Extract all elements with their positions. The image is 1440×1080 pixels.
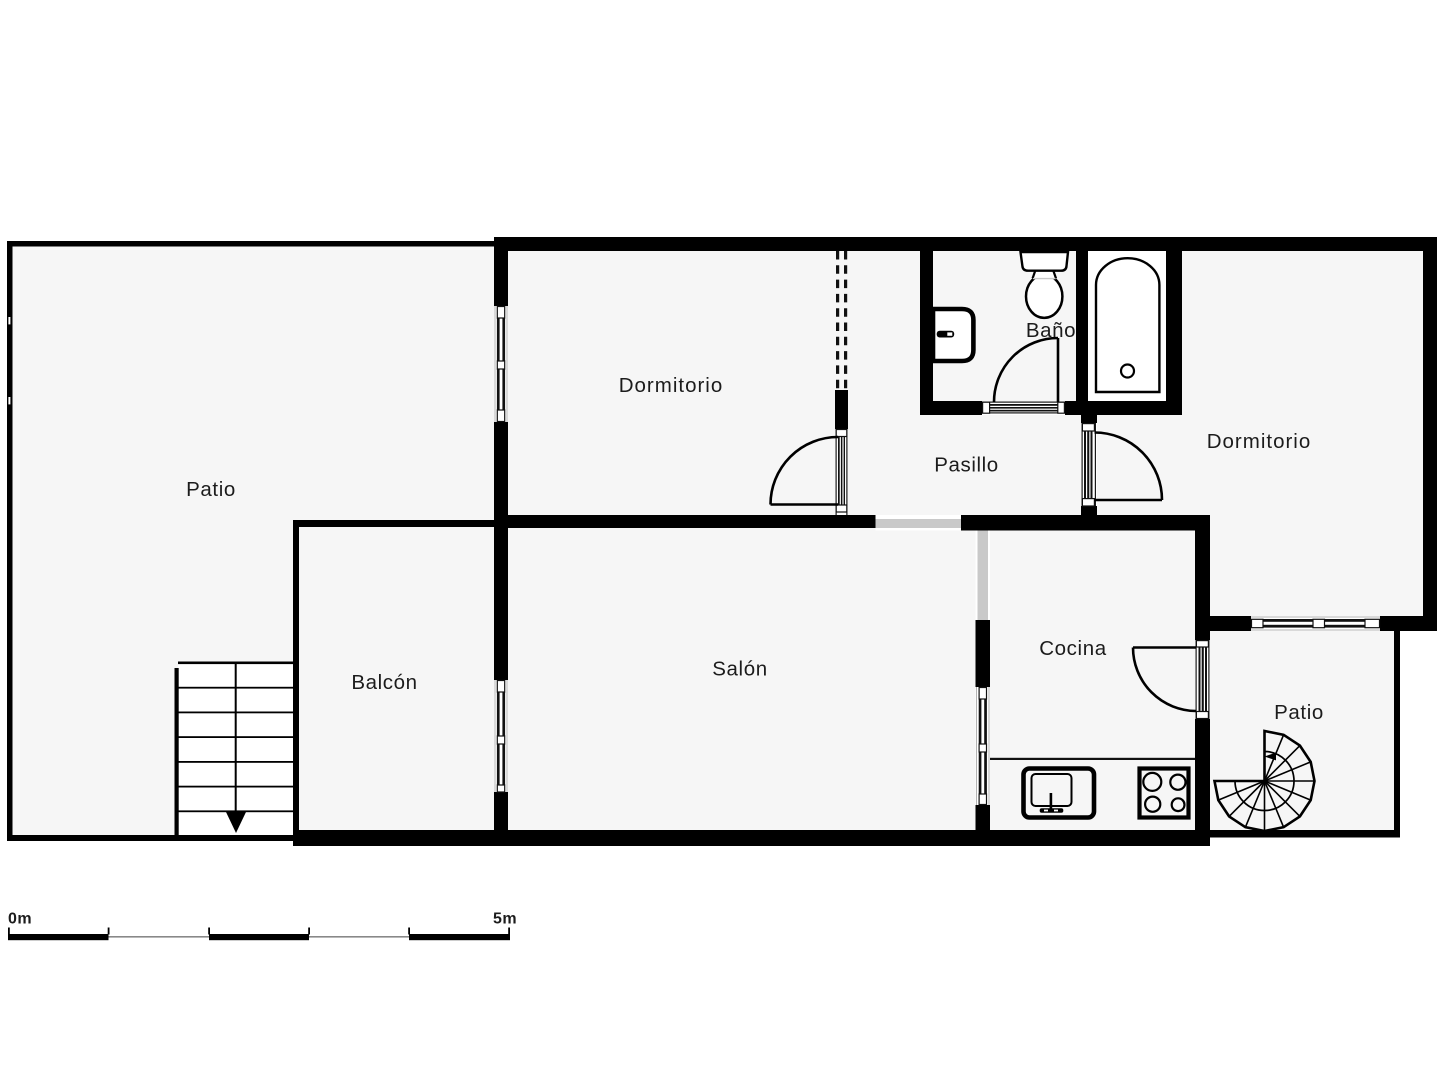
svg-text:Dormitorio: Dormitorio bbox=[1207, 430, 1312, 453]
svg-text:Balcón: Balcón bbox=[351, 671, 417, 694]
svg-text:Dormitorio: Dormitorio bbox=[619, 374, 724, 397]
svg-text:Pasillo: Pasillo bbox=[934, 454, 999, 477]
svg-text:0m: 0m bbox=[8, 911, 32, 928]
svg-text:5m: 5m bbox=[493, 911, 517, 928]
svg-text:Salón: Salón bbox=[712, 658, 767, 681]
svg-text:Cocina: Cocina bbox=[1039, 637, 1106, 660]
svg-text:Patio: Patio bbox=[1274, 701, 1324, 724]
svg-text:Baño: Baño bbox=[1026, 319, 1076, 342]
svg-text:Patio: Patio bbox=[186, 478, 236, 501]
